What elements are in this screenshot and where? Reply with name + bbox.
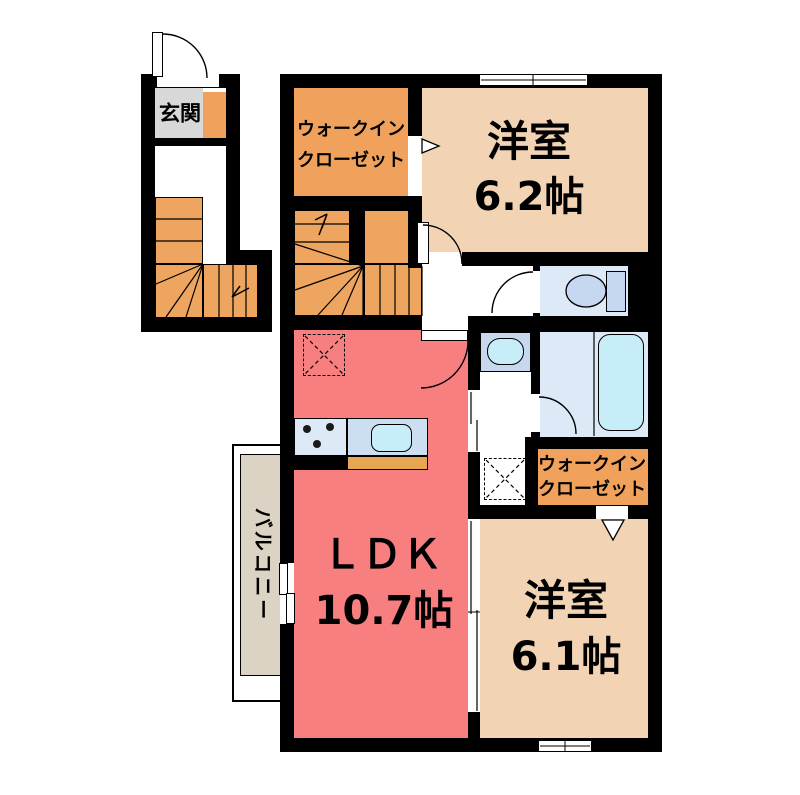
closet-bottom-label-line2: クローゼット xyxy=(538,481,646,499)
wall xyxy=(141,74,155,332)
window-bottom xyxy=(538,740,592,752)
wall xyxy=(648,74,662,752)
wall xyxy=(480,316,650,332)
toilet-tank xyxy=(606,271,626,312)
bedroom-bottom-name: 洋室 xyxy=(524,580,608,622)
washer-space-marker xyxy=(484,458,526,500)
balcony-label: バルコニー xyxy=(253,508,273,623)
bedroom-bottom-floor xyxy=(480,519,648,738)
closet-top-label-line2: クローゼット xyxy=(297,152,405,170)
wall xyxy=(280,316,422,330)
ldk-bedroom-sliding-partition xyxy=(468,519,480,712)
ldk-name: ＬＤＫ xyxy=(322,535,442,575)
bedroom-bottom-size: 6.1帖 xyxy=(511,637,622,677)
kitchen-stove-counter xyxy=(294,418,347,456)
closet-top-label-line1: ウォークイン xyxy=(297,121,405,139)
shoe-cabinet xyxy=(203,92,226,139)
wall xyxy=(628,266,648,316)
ldk-door-leaf xyxy=(421,330,468,341)
balcony-sliding-panel xyxy=(286,593,295,624)
wall xyxy=(141,318,272,332)
walk-in-closet-top-floor xyxy=(294,88,408,196)
bedroom-top-size: 6.2帖 xyxy=(474,177,585,217)
bathtub xyxy=(598,334,644,431)
wall xyxy=(280,738,662,752)
kitchen-sink xyxy=(371,424,412,452)
kitchen-counter-edge xyxy=(347,456,428,470)
refrigerator-space-marker xyxy=(303,334,345,376)
wall xyxy=(468,452,480,505)
wall xyxy=(226,74,240,264)
unit-stairs-corner xyxy=(294,264,364,316)
kitchen-counter-base xyxy=(294,456,347,470)
entrance-label: 玄関 xyxy=(159,104,201,125)
entrance-stairs-corner xyxy=(155,264,203,318)
wall xyxy=(468,712,480,738)
washbasin-sink xyxy=(487,338,524,365)
floor-plan: 玄関 ウォークイン クローゼット 洋室 6.2帖 ＬＤＫ 10.7帖 洋室 6.… xyxy=(0,0,800,795)
entrance-door-leaf xyxy=(152,32,163,77)
wall xyxy=(280,74,294,752)
unit-stairs-vertical-flight xyxy=(294,210,350,264)
wall xyxy=(350,210,364,264)
toilet-door-opening xyxy=(533,271,540,313)
wall xyxy=(294,196,422,210)
closet-bottom-label-line1: ウォークイン xyxy=(538,456,646,474)
closet-top-door-opening xyxy=(408,136,422,196)
washroom-sliding-door xyxy=(468,390,480,452)
balcony-sliding-panel xyxy=(279,563,288,595)
wall xyxy=(468,316,480,390)
bedroom-top-name: 洋室 xyxy=(487,121,571,163)
bathroom-door-opening xyxy=(531,394,540,432)
bedroom-top-floor xyxy=(422,88,648,252)
window-top xyxy=(479,74,588,86)
bedroom-top-door-leaf xyxy=(417,222,429,264)
entrance-door-arc xyxy=(163,34,207,78)
bedroom-bottom-door-opening xyxy=(596,506,628,519)
wall xyxy=(280,74,662,88)
wall xyxy=(462,252,650,266)
entrance-door-opening xyxy=(157,74,219,87)
wall xyxy=(525,437,650,449)
entrance-stairs-vertical-flight xyxy=(155,197,203,264)
unit-stairs-horizontal-flight xyxy=(364,264,422,316)
wall xyxy=(240,250,272,264)
wall xyxy=(525,449,538,505)
entrance-stairs-horizontal-flight xyxy=(203,264,258,318)
ldk-size: 10.7帖 xyxy=(315,591,454,631)
toilet-door-arc xyxy=(492,272,533,313)
